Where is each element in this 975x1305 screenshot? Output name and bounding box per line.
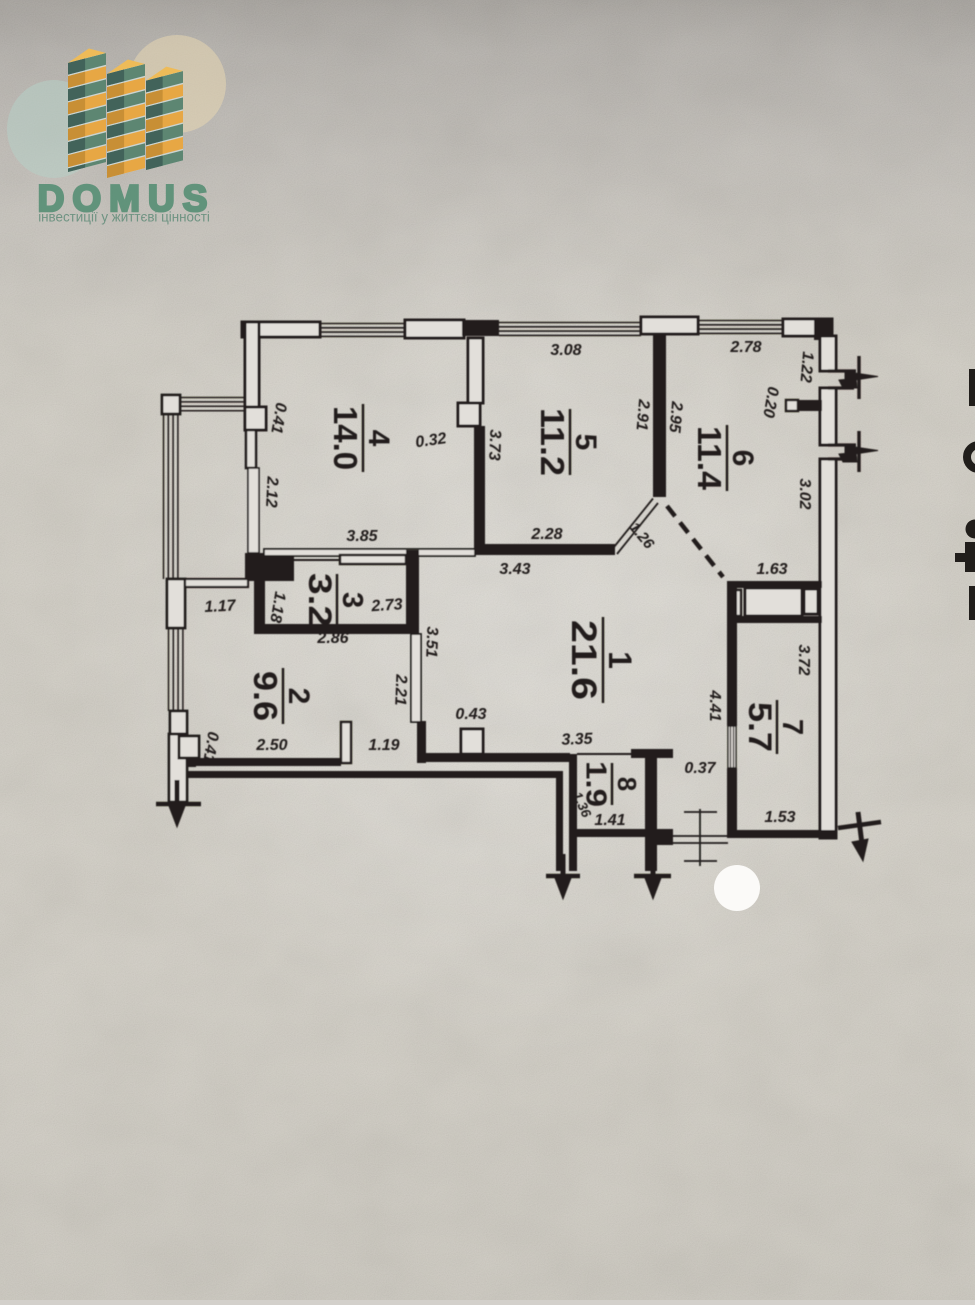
svg-text:7: 7 bbox=[776, 719, 808, 735]
svg-text:0.43: 0.43 bbox=[455, 706, 486, 723]
svg-text:1.17: 1.17 bbox=[204, 597, 237, 616]
svg-text:2.91: 2.91 bbox=[632, 398, 652, 432]
svg-text:14.0: 14.0 bbox=[327, 406, 364, 470]
svg-text:інвестиції у життєві цінності: інвестиції у життєві цінності bbox=[38, 210, 210, 225]
svg-text:3.85: 3.85 bbox=[346, 528, 378, 545]
svg-text:3.2: 3.2 bbox=[302, 573, 338, 627]
svg-text:1.41: 1.41 bbox=[594, 812, 625, 829]
svg-text:4.41: 4.41 bbox=[706, 689, 723, 721]
svg-text:2.21: 2.21 bbox=[391, 673, 409, 706]
svg-text:1.22: 1.22 bbox=[796, 351, 816, 384]
svg-text:3.51: 3.51 bbox=[422, 626, 440, 658]
svg-text:5: 5 bbox=[569, 434, 602, 451]
svg-text:3.08: 3.08 bbox=[550, 342, 581, 359]
svg-text:2.28: 2.28 bbox=[530, 526, 562, 543]
svg-text:3: 3 bbox=[336, 592, 368, 608]
svg-text:2.95: 2.95 bbox=[665, 400, 685, 435]
svg-text:3.35: 3.35 bbox=[561, 731, 594, 749]
svg-text:6: 6 bbox=[726, 450, 759, 467]
svg-text:2.78: 2.78 bbox=[729, 339, 761, 356]
svg-text:21.6: 21.6 bbox=[564, 620, 603, 700]
svg-text:1.53: 1.53 bbox=[764, 809, 795, 826]
svg-text:2.12: 2.12 bbox=[262, 475, 281, 508]
svg-text:3.72: 3.72 bbox=[795, 644, 812, 675]
svg-text:5.7: 5.7 bbox=[742, 702, 778, 752]
svg-text:2.50: 2.50 bbox=[255, 737, 287, 754]
svg-text:11.2: 11.2 bbox=[534, 408, 571, 476]
svg-text:0.37: 0.37 bbox=[684, 760, 716, 777]
svg-text:1.19: 1.19 bbox=[368, 737, 399, 754]
svg-text:8: 8 bbox=[612, 777, 642, 791]
svg-text:3.43: 3.43 bbox=[499, 561, 530, 578]
svg-text:4: 4 bbox=[362, 430, 395, 447]
svg-text:2.86: 2.86 bbox=[316, 630, 348, 647]
svg-text:3.02: 3.02 bbox=[796, 478, 813, 509]
svg-text:2.73: 2.73 bbox=[370, 596, 403, 615]
svg-text:1.63: 1.63 bbox=[756, 561, 787, 578]
svg-text:9.6: 9.6 bbox=[247, 671, 284, 721]
svg-text:2: 2 bbox=[282, 688, 315, 705]
svg-text:1: 1 bbox=[602, 651, 638, 669]
svg-text:3.73: 3.73 bbox=[485, 429, 503, 461]
svg-text:11.4: 11.4 bbox=[691, 426, 728, 491]
